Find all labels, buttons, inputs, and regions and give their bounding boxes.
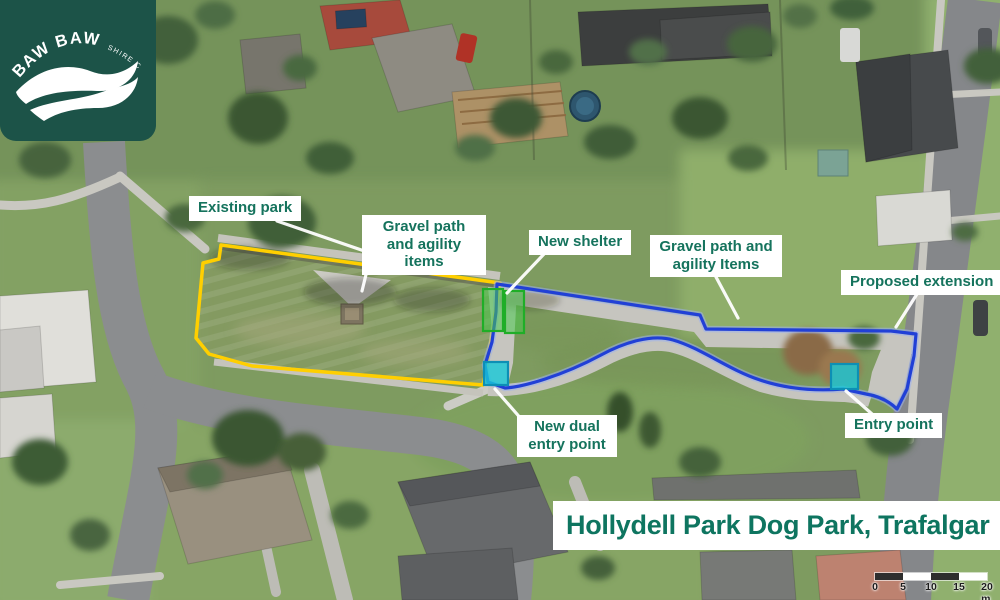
label-new-shelter: New shelter	[529, 230, 631, 255]
label-gravel-path-extension: Gravel path and agility Items	[650, 235, 782, 277]
map-flyer: Existing park Gravel path and agility it…	[0, 0, 1000, 600]
scale-bar: 0 5 10 15 20 m	[870, 573, 998, 593]
page-title: Hollydell Park Dog Park, Trafalgar	[553, 501, 1000, 550]
scale-tick: 15	[953, 581, 965, 593]
scale-tick: 0	[872, 581, 878, 593]
entry-marker	[831, 364, 858, 389]
scale-bar-segments	[875, 573, 987, 580]
label-entry-point: Entry point	[845, 413, 942, 438]
dual-entry-marker	[484, 362, 508, 385]
wave-icon	[16, 61, 138, 121]
scale-bar-ticks: 0 5 10 15 20 m	[870, 580, 998, 593]
scale-tick: 5	[900, 581, 906, 593]
new-shelter-marker	[483, 289, 524, 333]
label-gravel-path-existing: Gravel path and agility items	[362, 215, 486, 275]
scale-tick: 20 m	[981, 581, 993, 600]
council-logo: BAW BAW SHIRE COUNCIL	[0, 0, 156, 141]
scale-tick: 10	[925, 581, 937, 593]
label-existing-park: Existing park	[189, 196, 301, 221]
council-logo-art: BAW BAW SHIRE COUNCIL	[0, 0, 156, 141]
label-new-dual-entry-point: New dual entry point	[517, 415, 617, 457]
label-proposed-extension: Proposed extension	[841, 270, 1000, 295]
